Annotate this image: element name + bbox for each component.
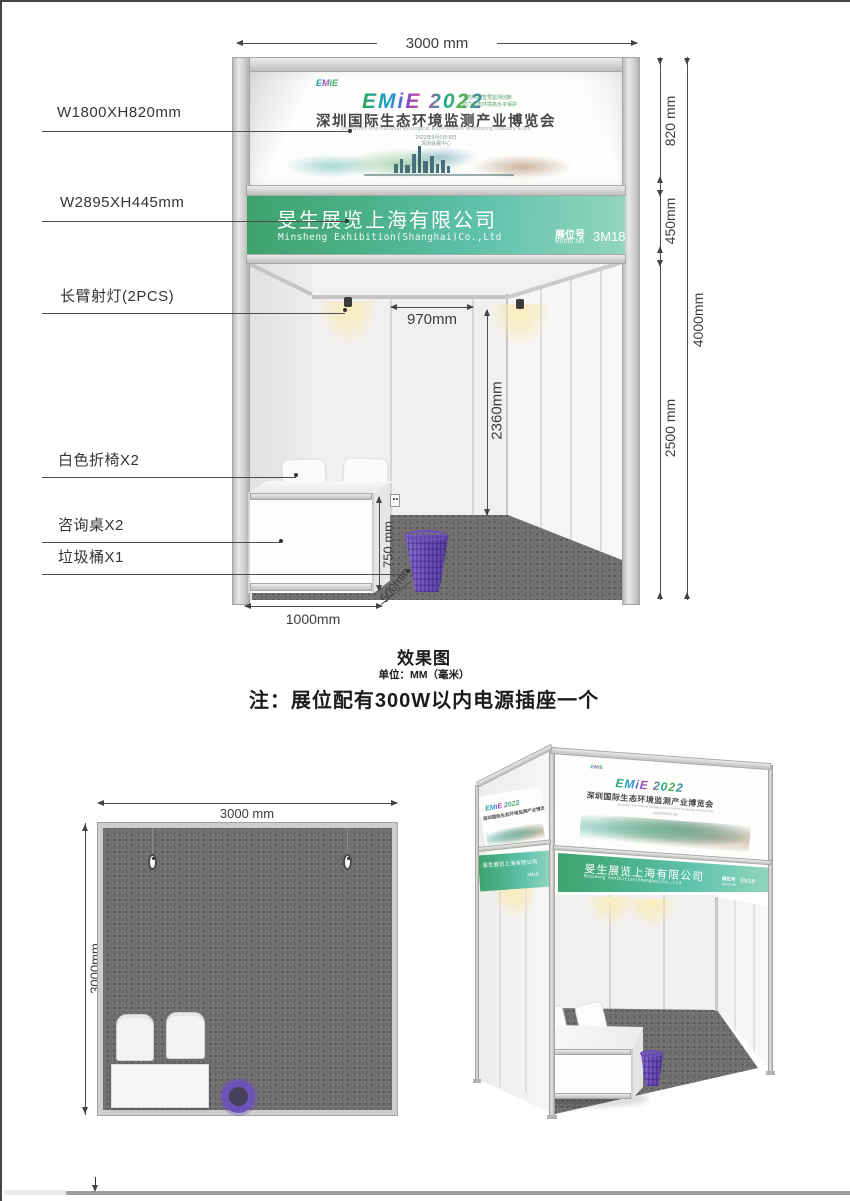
p-left-booth-no: 3M18	[527, 871, 539, 877]
dim-line-right-inner	[660, 57, 661, 600]
right-post	[622, 57, 640, 605]
page-border-left	[0, 0, 2, 1201]
post-base	[547, 1115, 557, 1119]
post-base	[766, 1071, 775, 1075]
dim-panel-label: 970mm	[402, 311, 462, 328]
light-dot	[152, 857, 155, 860]
wall-seam	[472, 298, 474, 515]
light-arm	[152, 828, 153, 856]
post-base	[473, 1079, 481, 1083]
leader-line	[42, 131, 350, 132]
leader-line	[42, 542, 281, 543]
watercolor-skyline-graphic	[284, 146, 590, 184]
expo-tagline-2: 助力生态环境高水平保护	[462, 101, 517, 108]
p-logo-small: EMiE	[590, 764, 603, 771]
perspective-view: EMiE 2022 深圳国际生态环境监测产业博览会 旻生展览上海有限公司 3M1…	[455, 735, 805, 1145]
floor-plan	[98, 823, 397, 1115]
p-back-wall	[555, 895, 717, 1010]
p-booth-no: 3M18	[740, 878, 755, 885]
arrow-down-icon	[92, 1185, 98, 1192]
bin-rim	[640, 1050, 663, 1057]
leader-line	[42, 574, 408, 575]
dim-wall-height-label: 2360mm	[489, 381, 506, 441]
p-post-left-front	[549, 747, 555, 1117]
p-post-left-back	[475, 785, 479, 1081]
p-post-right	[768, 765, 773, 1073]
p-left-fascia: 旻生展览上海有限公司 3M18	[478, 851, 552, 892]
fascia-board: 旻生展览上海有限公司 Minsheng Exhibition(Shanghai)…	[247, 196, 625, 254]
arrow-up-icon	[657, 176, 663, 183]
arrow-left-icon	[236, 40, 243, 46]
bin-rim	[404, 530, 448, 541]
lower-beam	[246, 254, 626, 264]
arrow-right-icon	[631, 40, 638, 46]
arrow-down-icon	[684, 58, 690, 65]
skyline-bars	[392, 146, 492, 177]
info-table-front	[248, 493, 374, 593]
callout-bin: 垃圾桶X1	[58, 546, 124, 567]
callout-table: 咨询桌X2	[58, 514, 124, 535]
p-left-company: 旻生展览上海有限公司	[482, 857, 537, 869]
dim-plan-width-label: 3000 mm	[97, 806, 397, 821]
dim-fascia-height-label: 450mm	[662, 191, 678, 251]
leader-dot	[279, 539, 283, 543]
table-top-rail	[250, 493, 372, 500]
plan-chair	[116, 1014, 154, 1061]
p-post-back-corner	[715, 897, 718, 1011]
leader-line	[42, 221, 347, 222]
dim-line-table-width	[245, 606, 382, 607]
expo-tagline-1: 生态环境智慧监测创新	[462, 94, 512, 101]
plan-spotlight-icon	[343, 854, 352, 870]
top-beam	[232, 57, 640, 72]
dim-walls-height-label: 2500 mm	[662, 398, 678, 458]
dim-line-plan-width	[98, 803, 397, 804]
arrow-up-icon	[657, 592, 663, 599]
callout-spotlight: 长臂射灯(2PCS)	[60, 285, 174, 306]
power-note: 注：展位配有300W以内电源插座一个	[124, 684, 724, 713]
fascia-booth-label-en: Booth No	[555, 238, 584, 245]
table-bottom-rail	[250, 583, 372, 591]
leader-line	[42, 477, 296, 478]
wall-seam	[600, 271, 602, 551]
table-bottom-rail	[549, 1093, 631, 1099]
plan-table	[111, 1064, 209, 1108]
arrow-up-icon	[484, 309, 490, 316]
header-banner-panel: EMiE EMiE 2022 生态环境智慧监测创新 助力生态环境高水平保护 深圳…	[250, 72, 622, 185]
spotlight-glow	[487, 887, 543, 953]
arrow-up-icon	[376, 496, 382, 503]
dim-line-plan-depth	[85, 823, 86, 1115]
page-border-top	[0, 0, 850, 2]
info-table-top	[248, 481, 394, 493]
arrow-up-icon	[684, 592, 690, 599]
p-trash-bin	[640, 1050, 664, 1086]
wall-seam	[753, 885, 755, 1080]
booth-design-sheet: { "front_view": { "dim_width_top": "3000…	[0, 0, 850, 1201]
p-left-wall: EMiE 2022 深圳国际生态环境监测产业博览会 旻生展览上海有限公司 3M1…	[477, 747, 551, 1115]
callout-chairs: 白色折椅X2	[58, 449, 139, 470]
arrow-up-icon	[82, 824, 88, 831]
leader-dot	[345, 219, 349, 223]
socket-hole	[396, 498, 398, 500]
spotlight-glow	[312, 302, 384, 392]
skyline-base	[364, 174, 514, 176]
plan-chair	[166, 1012, 205, 1059]
leader-dot	[348, 129, 352, 133]
next-sheet-edge	[66, 1191, 850, 1195]
fascia-company-en: Minsheng Exhibition(Shanghai)Co.,Ltd	[278, 232, 502, 243]
power-socket	[390, 494, 400, 507]
expo-logo-small: EMiE	[316, 78, 338, 88]
dim-table-width-label: 1000mm	[273, 611, 353, 627]
spotlight-fixture-icon	[516, 299, 524, 309]
table-top-rail	[549, 1049, 631, 1055]
callout-banner-size: W1800XH820mm	[57, 104, 181, 121]
mid-beam	[246, 185, 626, 196]
p-table-front	[547, 1049, 633, 1099]
dim-line-right-outer	[687, 57, 688, 600]
dim-line-panel	[391, 307, 473, 308]
light-dot	[347, 857, 350, 860]
fascia-company-cn: 旻生展览上海有限公司	[277, 204, 497, 233]
arrow-right-icon	[467, 304, 474, 310]
arrow-left-icon	[244, 603, 251, 609]
dim-banner-height-label: 820 mm	[662, 91, 678, 151]
leader-dot	[406, 569, 410, 573]
wall-top-rail	[312, 295, 508, 299]
socket-hole	[393, 498, 395, 500]
plan-spotlight-icon	[148, 854, 157, 870]
fascia-booth-no: 3M18	[593, 229, 626, 244]
leader-line	[42, 313, 345, 314]
arrow-down-icon	[657, 58, 663, 65]
light-arm	[347, 828, 348, 856]
arrow-down-icon	[657, 260, 663, 267]
arrow-left-icon	[390, 304, 397, 310]
leader-dot	[343, 308, 347, 312]
arrow-down-icon	[82, 1107, 88, 1114]
trash-bin	[404, 530, 450, 592]
view-title: 效果图	[124, 644, 724, 669]
next-sheet-edge-light	[4, 1190, 66, 1195]
dim-total-height-label: 4000mm	[690, 290, 706, 350]
dim-table-height-label: 750 mm	[381, 515, 396, 575]
callout-fascia-size: W2895XH445mm	[60, 194, 184, 211]
spotlight-fixture-icon	[344, 297, 352, 307]
leader-dot	[294, 473, 298, 477]
p-booth-label-en: Booth No	[721, 882, 736, 887]
plan-trash-bin	[222, 1080, 255, 1113]
spotlight-glow	[621, 899, 681, 957]
bin-body	[640, 1053, 664, 1086]
arrow-down-icon	[484, 509, 490, 516]
unit-note: 单位：MM（毫米）	[124, 667, 724, 682]
dim-top-width-label: 3000 mm	[377, 35, 497, 52]
wall-seam	[570, 279, 572, 540]
